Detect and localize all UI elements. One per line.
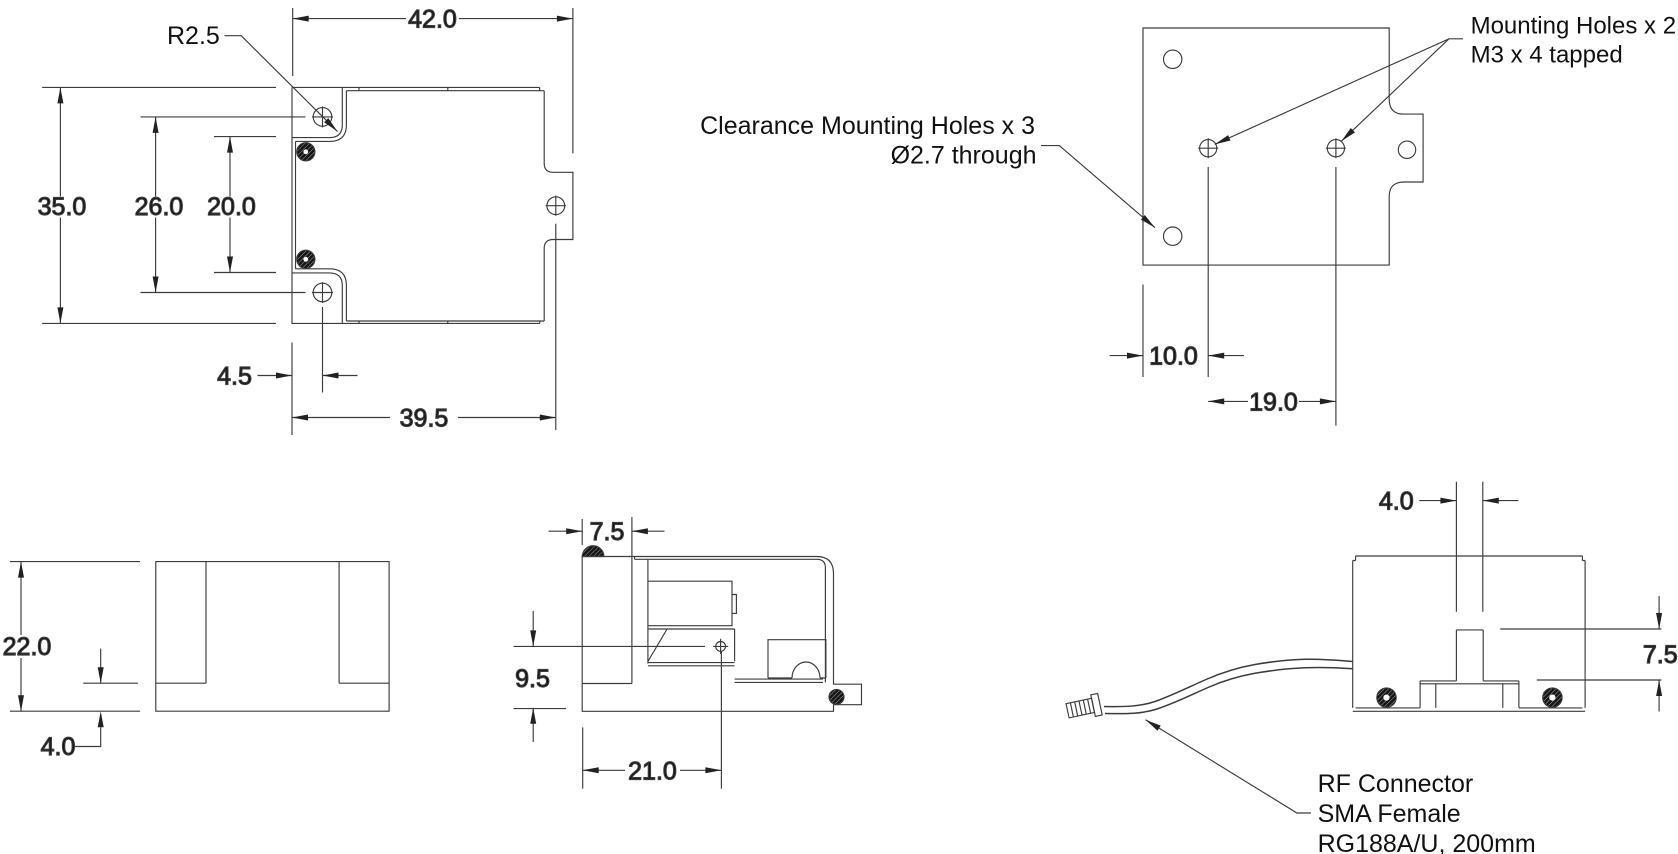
svg-text:R2.5: R2.5 [167,22,220,50]
svg-text:SMA Female: SMA Female [1318,800,1461,828]
svg-text:7.5: 7.5 [1643,641,1678,669]
svg-text:22.0: 22.0 [3,633,52,661]
svg-text:RF Connector: RF Connector [1318,770,1474,798]
svg-text:Mounting Holes x 2: Mounting Holes x 2 [1471,12,1676,39]
svg-text:39.5: 39.5 [400,405,449,433]
svg-text:35.0: 35.0 [38,193,87,221]
svg-text:9.5: 9.5 [515,665,550,693]
svg-text:4.5: 4.5 [217,363,252,391]
svg-text:21.0: 21.0 [628,757,677,785]
svg-text:42.0: 42.0 [408,5,457,33]
svg-text:4.0: 4.0 [41,733,76,761]
svg-text:7.5: 7.5 [590,518,625,546]
svg-text:Ø2.7 through: Ø2.7 through [891,141,1037,169]
svg-text:Clearance Mounting Holes x 3: Clearance Mounting Holes x 3 [700,112,1035,140]
svg-text:19.0: 19.0 [1249,388,1298,416]
svg-text:M3 x 4 tapped: M3 x 4 tapped [1471,42,1623,69]
svg-text:10.0: 10.0 [1149,343,1198,371]
svg-text:26.0: 26.0 [135,193,184,221]
svg-text:20.0: 20.0 [207,193,256,221]
svg-text:RG188A/U, 200mm: RG188A/U, 200mm [1318,830,1536,854]
svg-text:4.0: 4.0 [1379,488,1414,516]
